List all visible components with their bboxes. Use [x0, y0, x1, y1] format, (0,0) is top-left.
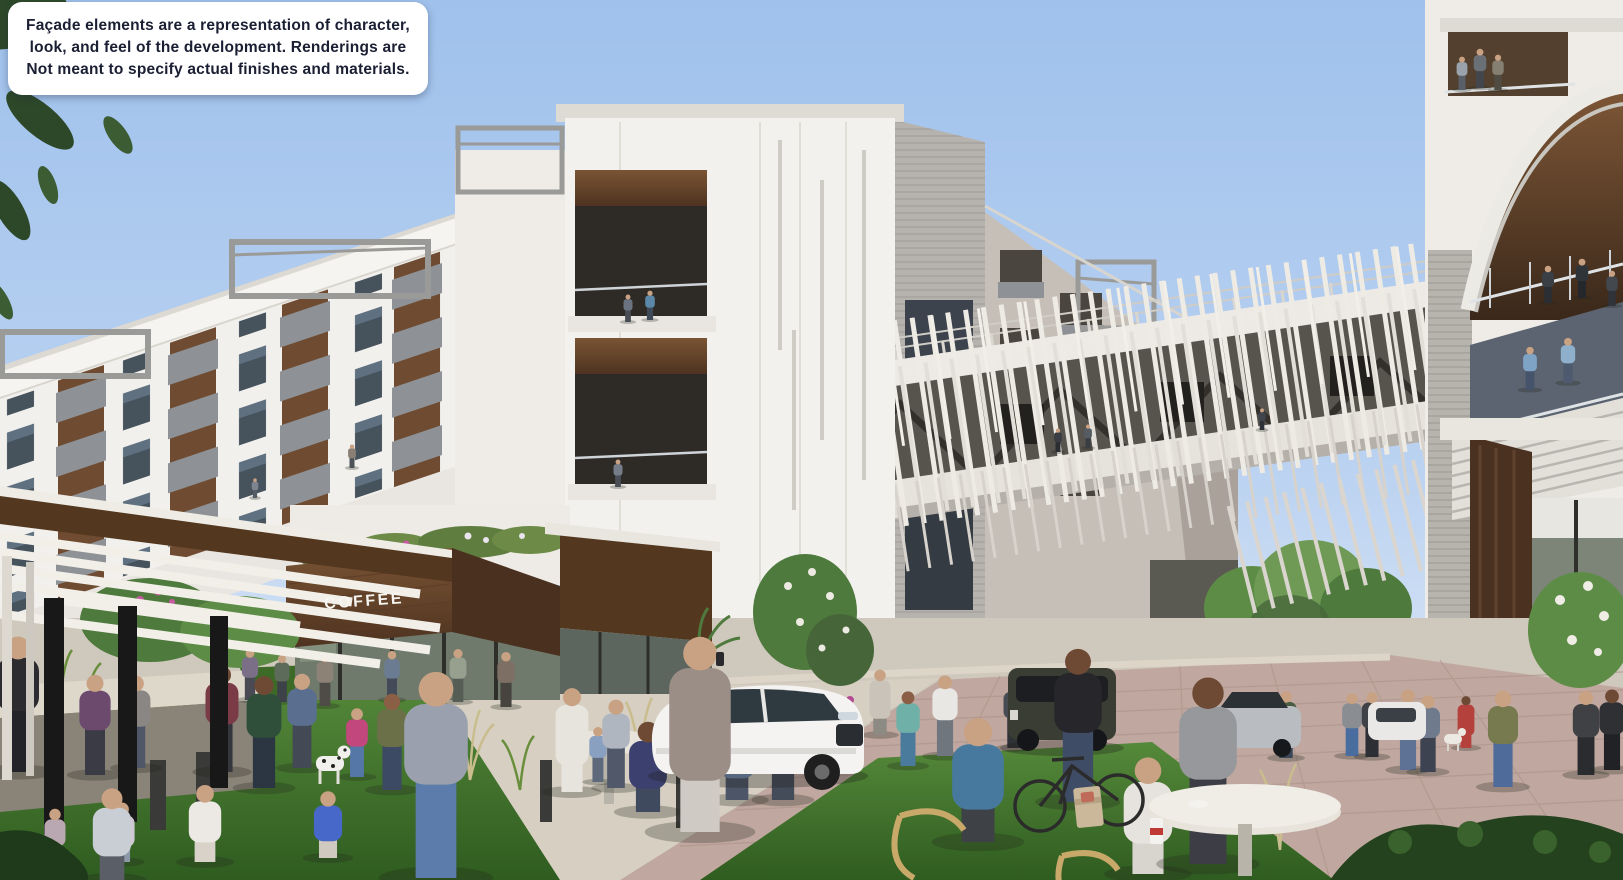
disclaimer-note: Façade elements are a representation of … — [8, 2, 428, 95]
architectural-rendering: COFFEE Façade elements are a representat… — [0, 0, 1623, 880]
disclaimer-line: Not meant to specify actual finishes and… — [16, 59, 420, 81]
white-car — [1368, 702, 1426, 740]
disclaimer-line: look, and feel of the development. Rende… — [16, 37, 420, 59]
disclaimer-line: Façade elements are a representation of … — [16, 15, 420, 37]
phone — [716, 652, 724, 666]
scene-svg: COFFEE — [0, 0, 1623, 880]
